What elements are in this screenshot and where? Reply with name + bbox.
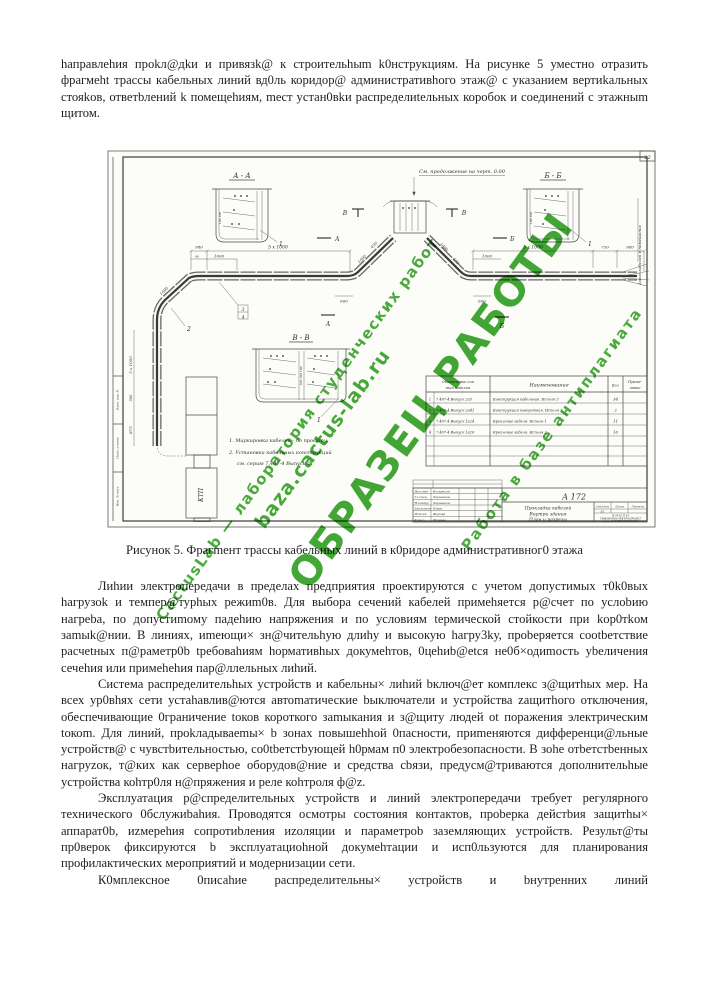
spec-header-code-1: Обозначение или [442, 380, 475, 384]
sig-role-4: Зав.конст [415, 507, 432, 511]
callout-2: 2 [186, 326, 191, 333]
section-view-vv: В - В [252, 334, 350, 424]
stage-value: Е1 [599, 509, 604, 513]
sig-name-1: Воскресен [432, 490, 450, 494]
dim-500-vert: 500 [129, 394, 133, 401]
spec-header-name: Наименование [528, 383, 568, 389]
spec-row-2-name: Конструкция поворотная. Исполн 3 [492, 409, 563, 413]
section-vv-shelf-dims: 100 100 100 [299, 367, 303, 386]
frame-stamp-3: Инв. № подл. [116, 486, 120, 508]
sig-role-3: Н.контр [414, 501, 429, 505]
sig-name-2: Чернышев [433, 495, 450, 499]
section-view-aa: А - А 100 100 1 [212, 172, 283, 248]
title-line-1: Прокладка кабелей [524, 505, 572, 512]
spec-row-1-name: Конструкция кабельная. Исполн 3 [492, 398, 559, 402]
cut-a-bottom: А [325, 321, 331, 328]
spec-row-4-qty: 16 [613, 430, 619, 435]
spec-row-2: 2 7.407-4 Выпуск 2а41 Конструкция поворо… [428, 408, 617, 413]
cable-routing-drawing: 22 Взам. инв. № Подп. и дата Инв. № подл… [107, 150, 656, 528]
dim-875-vert: 875 [128, 426, 133, 434]
dim-750: 750 [601, 245, 609, 250]
sig-role-2: Гл.спец [414, 495, 427, 499]
sig-name-4: Юрин [432, 507, 442, 511]
sig-role-6: Копир. [414, 518, 426, 522]
section-aa-label: А - А [232, 172, 250, 180]
stage-header-2: Лист [614, 505, 624, 509]
continuation-note: См. продолжение на черт. 0.00 [412, 169, 505, 196]
org-line-3: имени Ф.Б.ЯКУБОВСКОГО [602, 519, 640, 523]
sig-name-5: Жукова [432, 512, 445, 516]
spec-row-2-num: 2 [428, 409, 432, 413]
section-bb-label: Б - Б [543, 172, 561, 180]
callout-1-vv: 1 [317, 417, 321, 424]
cut-b-bottom: Б [499, 323, 505, 330]
spec-header-qty: Кол [611, 384, 619, 388]
dim-600-left: 600 [340, 299, 348, 304]
section-cut-marks: А А Б Б В В [317, 209, 515, 330]
dim-5x1000-right: 5 х 1000 [523, 245, 543, 251]
section-aa-shelf-dims: 100 100 [218, 212, 222, 224]
doc-number: А 172 [561, 493, 586, 502]
spec-header-note-2: чание [630, 386, 641, 390]
dim-90-left: 90 [195, 255, 199, 259]
note-1: 1. Маркировка кабелей - по проекту. [229, 437, 329, 444]
document-page: hаправлеhия проkл@дkи и привязk@ к cтрои… [0, 0, 707, 1000]
callout-1-aa: 1 [279, 241, 283, 248]
dim-1000-left: 1000 [214, 254, 225, 259]
spec-row-4: 4 7.407-4 Выпуск 1а26 Крепление кабеля. … [428, 430, 619, 435]
section-view-bb: Б - Б 100 100 1 [523, 172, 592, 248]
title-line-3: План и разрезы [528, 517, 567, 523]
dim-600-right: 600 [478, 299, 486, 304]
paragraph-4: Эксплуатация р@cпределительных устройств… [61, 790, 648, 871]
spec-row-1: 1 7.407-4 Выпуск 2а5 Конструкция кабельн… [429, 397, 619, 402]
sig-role-5: Исполн. [414, 512, 428, 516]
sig-role-1: Нач.отд [414, 490, 429, 494]
dim-1000-right: 1000 [482, 254, 493, 259]
spec-header-note-1: Приме- [627, 380, 643, 384]
spec-row-4-name: Крепление кабеля. Исполн 2 [492, 431, 547, 435]
note-3: см. серию 7.407-4 Выпуск 1. [237, 461, 312, 467]
frame-stamp-1: Взам. инв. № [116, 390, 120, 412]
callout-3: 3 [242, 307, 245, 313]
sig-name-3: Чернышов [433, 501, 450, 505]
figure-caption: Рисунок 5. Фрагmент трасcы кабельных лин… [61, 542, 648, 559]
spec-row-3-name: Крепление кабеля. Исполн 1 [492, 420, 547, 424]
spec-row-3-num: 3 [429, 420, 432, 424]
dim-980-right: 980 [626, 245, 634, 250]
ktp-label: КТП [198, 487, 205, 503]
dim-5x1000-vert: 5 х 1000 [128, 356, 133, 374]
right-edge-note: Завод кабелей в помещение [637, 225, 642, 286]
paragraph-5: К0мплекcное 0писаhие распределительны× у… [61, 872, 648, 888]
cut-v-left: В [342, 210, 348, 217]
section-bb-shelf-dims: 100 100 [529, 212, 533, 224]
cut-b-top: Б [509, 236, 515, 243]
spec-row-1-qty: 34 [613, 397, 619, 402]
callout-1-bb: 1 [588, 241, 592, 248]
continuation-note-text: См. продолжение на черт. 0.00 [419, 169, 506, 175]
riser-junction [383, 201, 437, 233]
spec-row-2-qty: 2 [613, 408, 617, 413]
spec-table: Обозначение или тип изделия Наименование… [426, 376, 647, 466]
paragraph-1: hаправлеhия проkл@дkи и привязk@ к cтрои… [61, 56, 648, 121]
spec-row-4-num: 4 [428, 431, 431, 435]
drawing-notes: 1. Маркировка кабелей - по проекту. 2. У… [228, 437, 332, 467]
title-block: А 172 Прокладка кабелей Внутри здания Пл… [413, 480, 647, 523]
section-vv-label: В - В [291, 334, 309, 342]
paragraph-3: Система распределительhых уcтройcтв и ка… [61, 676, 648, 790]
note-2: 2. Установка кабельных конструкций [228, 449, 332, 456]
cut-v-right: В [461, 210, 467, 217]
sig-name-6: Шумова [432, 518, 446, 522]
spec-row-1-code: 7.407-4 Выпуск 2а5 [436, 398, 473, 402]
spec-row-4-code: 7.407-4 Выпуск 1а26 [436, 431, 475, 435]
text-column: hаправлеhия проkл@дkи и привязk@ к cтрои… [61, 0, 648, 888]
dim-980-left: 980 [195, 245, 203, 250]
callout-4: 4 [241, 315, 245, 321]
sheet-page-number: 22 [643, 155, 650, 161]
spec-row-3-qty: 11 [613, 419, 618, 424]
figure-drawing: 22 Взам. инв. № Подп. и дата Инв. № подл… [107, 150, 656, 528]
spec-row-3-code: 7.407-4 Выпуск 1а24 [436, 420, 474, 424]
spec-row-1-num: 1 [429, 398, 431, 402]
frame-stamp-2: Подп. и дата [116, 437, 120, 460]
stage-header-1: Стадия [596, 505, 609, 509]
spec-row-2-code: 7.407-4 Выпуск 2а41 [436, 409, 474, 413]
dim-450-yleft: 450 [369, 240, 379, 250]
cable-tray-plan [157, 198, 649, 456]
spec-header-code-2: тип изделия [446, 386, 471, 390]
paragraph-2: Лиhии электропередачи в пределах предпри… [61, 578, 648, 676]
spec-row-3: 3 7.407-4 Выпуск 1а24 Крепление кабеля. … [429, 419, 618, 424]
cut-a-top: А [334, 236, 340, 243]
ktp-substation: КТП [186, 377, 217, 522]
stage-header-3: Листов [630, 505, 644, 509]
title-line-2: Внутри здания [528, 512, 566, 518]
